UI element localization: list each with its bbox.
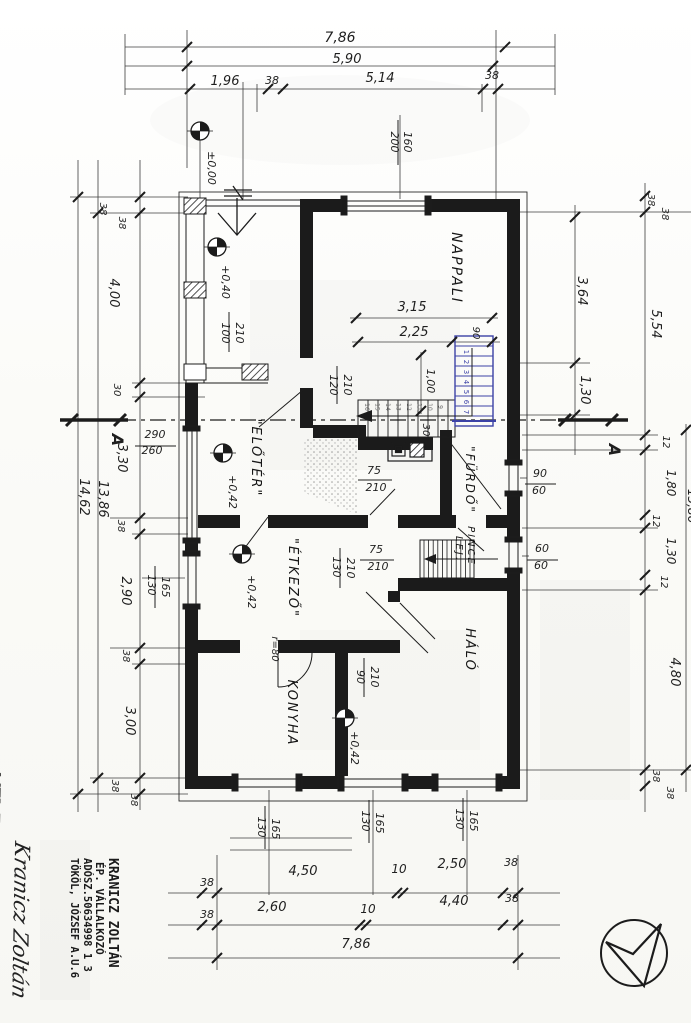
dim-label: 75 <box>367 464 381 477</box>
dim-label: 90 <box>354 670 367 684</box>
dim-label: 160 <box>401 132 414 153</box>
dim-label: 5,90 <box>333 52 362 67</box>
dim-label: +0,42 <box>348 731 361 765</box>
stair-tread-number: 13 <box>395 403 402 411</box>
dim-label: 60 <box>535 542 549 555</box>
dim-label: 12 <box>660 436 671 449</box>
dim-label: 12 <box>658 576 669 589</box>
dim-label: 14,62 <box>76 478 91 515</box>
scan-artifacts <box>40 75 630 1000</box>
exterior-steps <box>303 438 358 515</box>
dim-label: 290 <box>145 428 166 441</box>
dim-label: 38 <box>664 787 675 800</box>
stair-tread-number: 12 <box>405 403 412 411</box>
dim-label: 38 <box>120 650 131 663</box>
dim-label: 2,50 <box>438 857 467 872</box>
dim-label: 2,90 <box>118 577 133 606</box>
dim-label: 38 <box>109 780 120 793</box>
dim-label: 75 <box>369 543 383 556</box>
dim-label: 30 <box>420 424 431 437</box>
room-label: HÁLÓ <box>462 628 478 672</box>
dim-label: 210 <box>368 560 389 573</box>
dim-label: 3,30 <box>114 444 129 473</box>
dim-label: 1,00 <box>424 369 437 394</box>
dim-label: +0,42 <box>226 475 239 509</box>
dim-label: 165 <box>159 577 172 598</box>
dim-label: 165 <box>269 819 282 840</box>
dim-label: +0,42 <box>245 575 258 609</box>
dim-label: 38 <box>97 203 108 216</box>
titleblock-address: TÖKÖL, JÓZSEF A.U.6 <box>68 858 80 978</box>
dim-label: 2,25 <box>400 325 429 340</box>
stair-tread-number: 9 <box>437 405 444 409</box>
dim-label: 210 <box>368 667 381 688</box>
room-label: "ÉTKEZŐ" <box>285 538 301 618</box>
dim-label: 165 <box>373 813 386 834</box>
dim-label: 38 <box>505 892 519 905</box>
dim-label: r=80 <box>269 636 280 661</box>
dim-label: 2,60 <box>258 900 287 915</box>
dim-label: 38 <box>116 217 127 230</box>
dim-label: 38 <box>504 856 518 869</box>
dim-label: 200 <box>388 132 401 153</box>
dim-label: 38 <box>485 69 499 82</box>
room-label: PINCE <box>465 526 476 566</box>
dim-label: 100 <box>219 323 232 344</box>
stair-tread-number: 10 <box>426 403 433 411</box>
stair-tread-number: 15 <box>374 403 381 411</box>
stair-tread-number: 14 <box>384 403 391 411</box>
dim-label: 5,54 <box>648 310 663 339</box>
stair-tread-number: 16 <box>363 403 370 411</box>
stair-tread-number-blue: 3 <box>462 370 470 374</box>
dim-label: 4,50 <box>289 864 318 879</box>
section-letter: A <box>605 442 624 456</box>
dim-label: 38 <box>115 520 126 533</box>
titleblock-tax-number: ADÓSZ.50634998 1 3 <box>81 858 93 972</box>
stair-tread-number-blue: 7 <box>462 410 470 414</box>
dim-label: 38 <box>659 208 670 221</box>
north-arrow-icon <box>601 920 667 986</box>
dim-label: 13,86 <box>95 480 110 517</box>
dim-label: 1,30 <box>577 376 592 405</box>
dim-label: 5,14 <box>366 71 395 86</box>
dim-label: 210 <box>366 481 387 494</box>
dim-label: 3,00 <box>122 707 137 736</box>
dim-label: 7,86 <box>342 937 371 952</box>
dim-label: 38 <box>128 794 139 807</box>
dim-label: 210 <box>233 323 246 344</box>
stair-tread-number-blue: 5 <box>462 390 470 394</box>
dim-label: 1,30 <box>664 538 678 565</box>
dimension-labels: 7,865,901,96385,1438±0,0020016038384,003… <box>76 30 691 952</box>
dim-label: 12 <box>650 515 661 528</box>
dim-label: 120 <box>327 375 340 396</box>
dim-label: 13,86 <box>685 489 691 524</box>
dim-label: +0,40 <box>219 265 232 299</box>
dim-label: 38 <box>200 876 214 889</box>
dim-label: 130 <box>330 557 343 578</box>
dim-label: 165 <box>467 811 480 832</box>
dim-label: 4,00 <box>106 279 121 308</box>
dim-label: 210 <box>341 375 354 396</box>
room-label: KONYHA <box>284 680 299 747</box>
dim-label: 38 <box>200 908 214 921</box>
dim-label: 4,80 <box>667 658 682 687</box>
dim-label: 60 <box>534 559 548 572</box>
dim-label: 130 <box>453 809 466 830</box>
dim-label: 3,64 <box>574 277 589 306</box>
dim-label: 90 <box>533 467 547 480</box>
dim-label: 30 <box>111 384 122 397</box>
dim-label: 38 <box>645 194 656 207</box>
entrance-arrow-icon <box>218 186 256 235</box>
dim-label: 130 <box>145 575 158 596</box>
dim-label: ±0,00 <box>205 151 218 185</box>
section-letter: A <box>108 432 127 446</box>
stair-tread-number: 11 <box>416 403 423 411</box>
stair-tread-number-blue: 6 <box>462 400 470 405</box>
dim-label: 38 <box>265 74 279 87</box>
dim-label: 4,40 <box>440 894 469 909</box>
dim-label: 210 <box>344 558 357 579</box>
dim-label: 10 <box>391 862 407 876</box>
dim-label: 60 <box>532 484 546 497</box>
room-label: NAPPALI <box>448 232 464 304</box>
dim-label: 38 <box>650 770 661 783</box>
dim-label: 10 <box>360 902 376 916</box>
stair-tread-number-blue: 2 <box>462 360 470 364</box>
titleblock-company-name: KRANICZ ZOLTÁN <box>105 858 120 968</box>
room-label: "ELŐTÉR" <box>248 419 264 498</box>
dim-label: 3,15 <box>398 300 427 315</box>
titleblock-company-type: ÉP. VÁLLALKOZÓ <box>93 862 106 955</box>
room-label: "FÜRDŐ" <box>463 446 479 514</box>
dim-label: 130 <box>255 817 268 838</box>
stair-tread-number-blue: 4 <box>462 380 470 385</box>
dim-label: 1,96 <box>211 74 240 89</box>
signature: Kranicz Zoltán <box>7 839 34 1001</box>
dim-label: 1,80 <box>664 470 678 497</box>
room-label: LEJ. <box>453 536 464 562</box>
scanned-floorplan-page: 7,865,901,96385,1438±0,0020016038384,003… <box>0 0 691 1023</box>
dim-label: 130 <box>359 811 372 832</box>
dim-label: 90 <box>470 327 481 340</box>
stair-tread-number-blue: 1 <box>462 350 470 354</box>
dim-label: 7,86 <box>324 30 355 46</box>
